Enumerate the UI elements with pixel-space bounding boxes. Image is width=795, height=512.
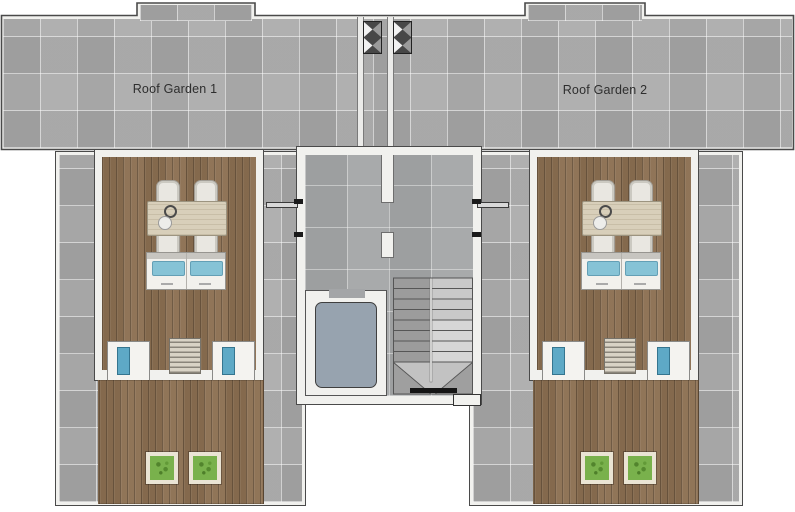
door-hinge-icon — [472, 232, 481, 237]
door-leaf-east — [477, 202, 509, 208]
top-band-bump-right — [528, 5, 642, 21]
elevator-cab — [315, 302, 377, 388]
core-wall-stub — [381, 155, 394, 203]
door-hinge-icon — [294, 199, 303, 204]
stair-divider — [430, 278, 432, 382]
roof-garden-2-label: Roof Garden 2 — [530, 83, 680, 97]
roof-garden-1-label: Roof Garden 1 — [100, 82, 250, 96]
door-hinge-icon — [472, 199, 481, 204]
elevator-door-opening — [329, 289, 365, 298]
core-wall-stub — [381, 232, 394, 258]
roof-region-right — [470, 152, 742, 505]
core-wall-step — [453, 394, 481, 406]
roof-hatch-icon — [393, 21, 412, 54]
top-band-bump-left — [140, 5, 252, 21]
stair-cut-line — [410, 388, 457, 393]
staircase — [393, 268, 473, 396]
door-hinge-icon — [294, 232, 303, 237]
roof-floor-plan: Roof Garden 1 Roof Garden 2 — [0, 0, 795, 512]
roof-hatch-icon — [363, 21, 382, 54]
